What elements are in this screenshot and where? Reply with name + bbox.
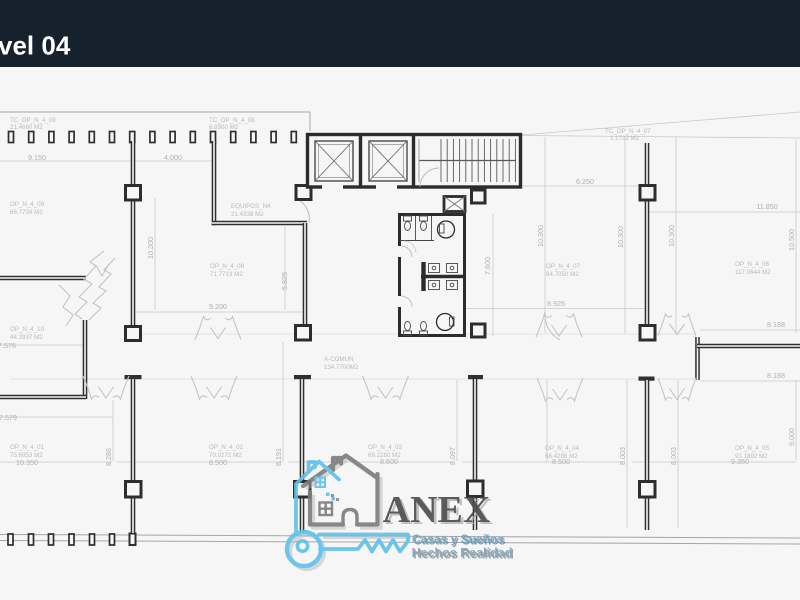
svg-text:A-COMUN: A-COMUN <box>324 356 354 363</box>
svg-text:69.2280 M2: 69.2280 M2 <box>368 452 401 459</box>
svg-text:OP_N_4_09: OP_N_4_09 <box>10 201 45 208</box>
svg-text:10.300: 10.300 <box>146 237 155 259</box>
svg-text:OP_N_4_06: OP_N_4_06 <box>735 261 770 268</box>
svg-text:EQUIPOS_N4: EQUIPOS_N4 <box>231 203 271 210</box>
svg-text:10.300: 10.300 <box>616 226 625 248</box>
svg-text:10.300: 10.300 <box>536 225 545 247</box>
svg-text:8.925: 8.925 <box>547 299 565 308</box>
svg-text:OP_N_4_08: OP_N_4_08 <box>210 263 245 270</box>
svg-text:1.1722 M2: 1.1722 M2 <box>610 135 640 142</box>
svg-text:21.4660 M2: 21.4660 M2 <box>10 124 43 131</box>
svg-text:75.6953 M2: 75.6953 M2 <box>10 452 43 459</box>
svg-text:91.1892 M2: 91.1892 M2 <box>735 453 768 460</box>
svg-text:8.8900 M2: 8.8900 M2 <box>209 124 239 131</box>
svg-text:84.7050 M2: 84.7050 M2 <box>546 271 579 278</box>
svg-text:70.0272 M2: 70.0272 M2 <box>209 452 242 459</box>
svg-text:TC_OP_N_4_07: TC_OP_N_4_07 <box>605 128 651 135</box>
svg-text:8.500: 8.500 <box>209 458 227 467</box>
svg-text:10.350: 10.350 <box>16 458 38 467</box>
svg-text:Casas y Sueños: Casas y Sueños <box>412 532 504 546</box>
svg-text:4.000: 4.000 <box>164 153 182 162</box>
svg-text:6.250: 6.250 <box>576 177 594 186</box>
svg-text:Hechos Realidad: Hechos Realidad <box>412 546 513 560</box>
svg-text:OP_N_4_02: OP_N_4_02 <box>209 444 244 451</box>
svg-text:7.579: 7.579 <box>0 413 17 422</box>
svg-text:68.4288 M2: 68.4288 M2 <box>545 453 578 460</box>
svg-text:11.850: 11.850 <box>756 202 777 211</box>
svg-text:OP_N_4_04: OP_N_4_04 <box>545 445 580 452</box>
svg-text:OP_N_4_07: OP_N_4_07 <box>546 263 581 270</box>
svg-text:10.300: 10.300 <box>667 225 676 247</box>
svg-text:117.0644 M2: 117.0644 M2 <box>735 269 771 276</box>
svg-text:66.7734 M2: 66.7734 M2 <box>10 209 43 216</box>
svg-text:9.200: 9.200 <box>209 302 227 311</box>
svg-text:ANEX: ANEX <box>383 489 491 531</box>
svg-text:134.7700M2: 134.7700M2 <box>324 364 359 371</box>
svg-text:OP_N_4_05: OP_N_4_05 <box>735 445 770 452</box>
svg-text:8.191: 8.191 <box>274 448 283 466</box>
svg-text:21.4338 M2: 21.4338 M2 <box>231 211 264 218</box>
svg-text:OP_N_4_01: OP_N_4_01 <box>10 444 45 451</box>
svg-text:5.825: 5.825 <box>280 272 289 290</box>
svg-text:Nivel 04: Nivel 04 <box>0 31 71 61</box>
svg-text:44.2937 M2: 44.2937 M2 <box>10 334 43 341</box>
svg-text:8.286: 8.286 <box>104 448 113 466</box>
svg-text:8.003: 8.003 <box>669 447 678 465</box>
svg-text:9.150: 9.150 <box>28 153 46 162</box>
svg-text:8.003: 8.003 <box>618 447 627 465</box>
svg-text:OP_N_4_03: OP_N_4_03 <box>368 444 403 451</box>
svg-text:OP_N_4_10: OP_N_4_10 <box>10 326 45 333</box>
svg-text:8.097: 8.097 <box>448 447 457 465</box>
svg-text:9.000: 9.000 <box>787 428 796 446</box>
svg-text:TC_OP_N_4_08: TC_OP_N_4_08 <box>209 117 255 124</box>
svg-text:8.188: 8.188 <box>767 320 785 329</box>
svg-text:8.188: 8.188 <box>767 371 785 380</box>
svg-text:71.7713 M2: 71.7713 M2 <box>210 271 243 278</box>
svg-text:10.500: 10.500 <box>787 229 796 251</box>
svg-text:7.576: 7.576 <box>0 341 16 350</box>
svg-text:7.600: 7.600 <box>483 257 492 275</box>
svg-text:TC_OP_N_4_09: TC_OP_N_4_09 <box>10 117 56 124</box>
